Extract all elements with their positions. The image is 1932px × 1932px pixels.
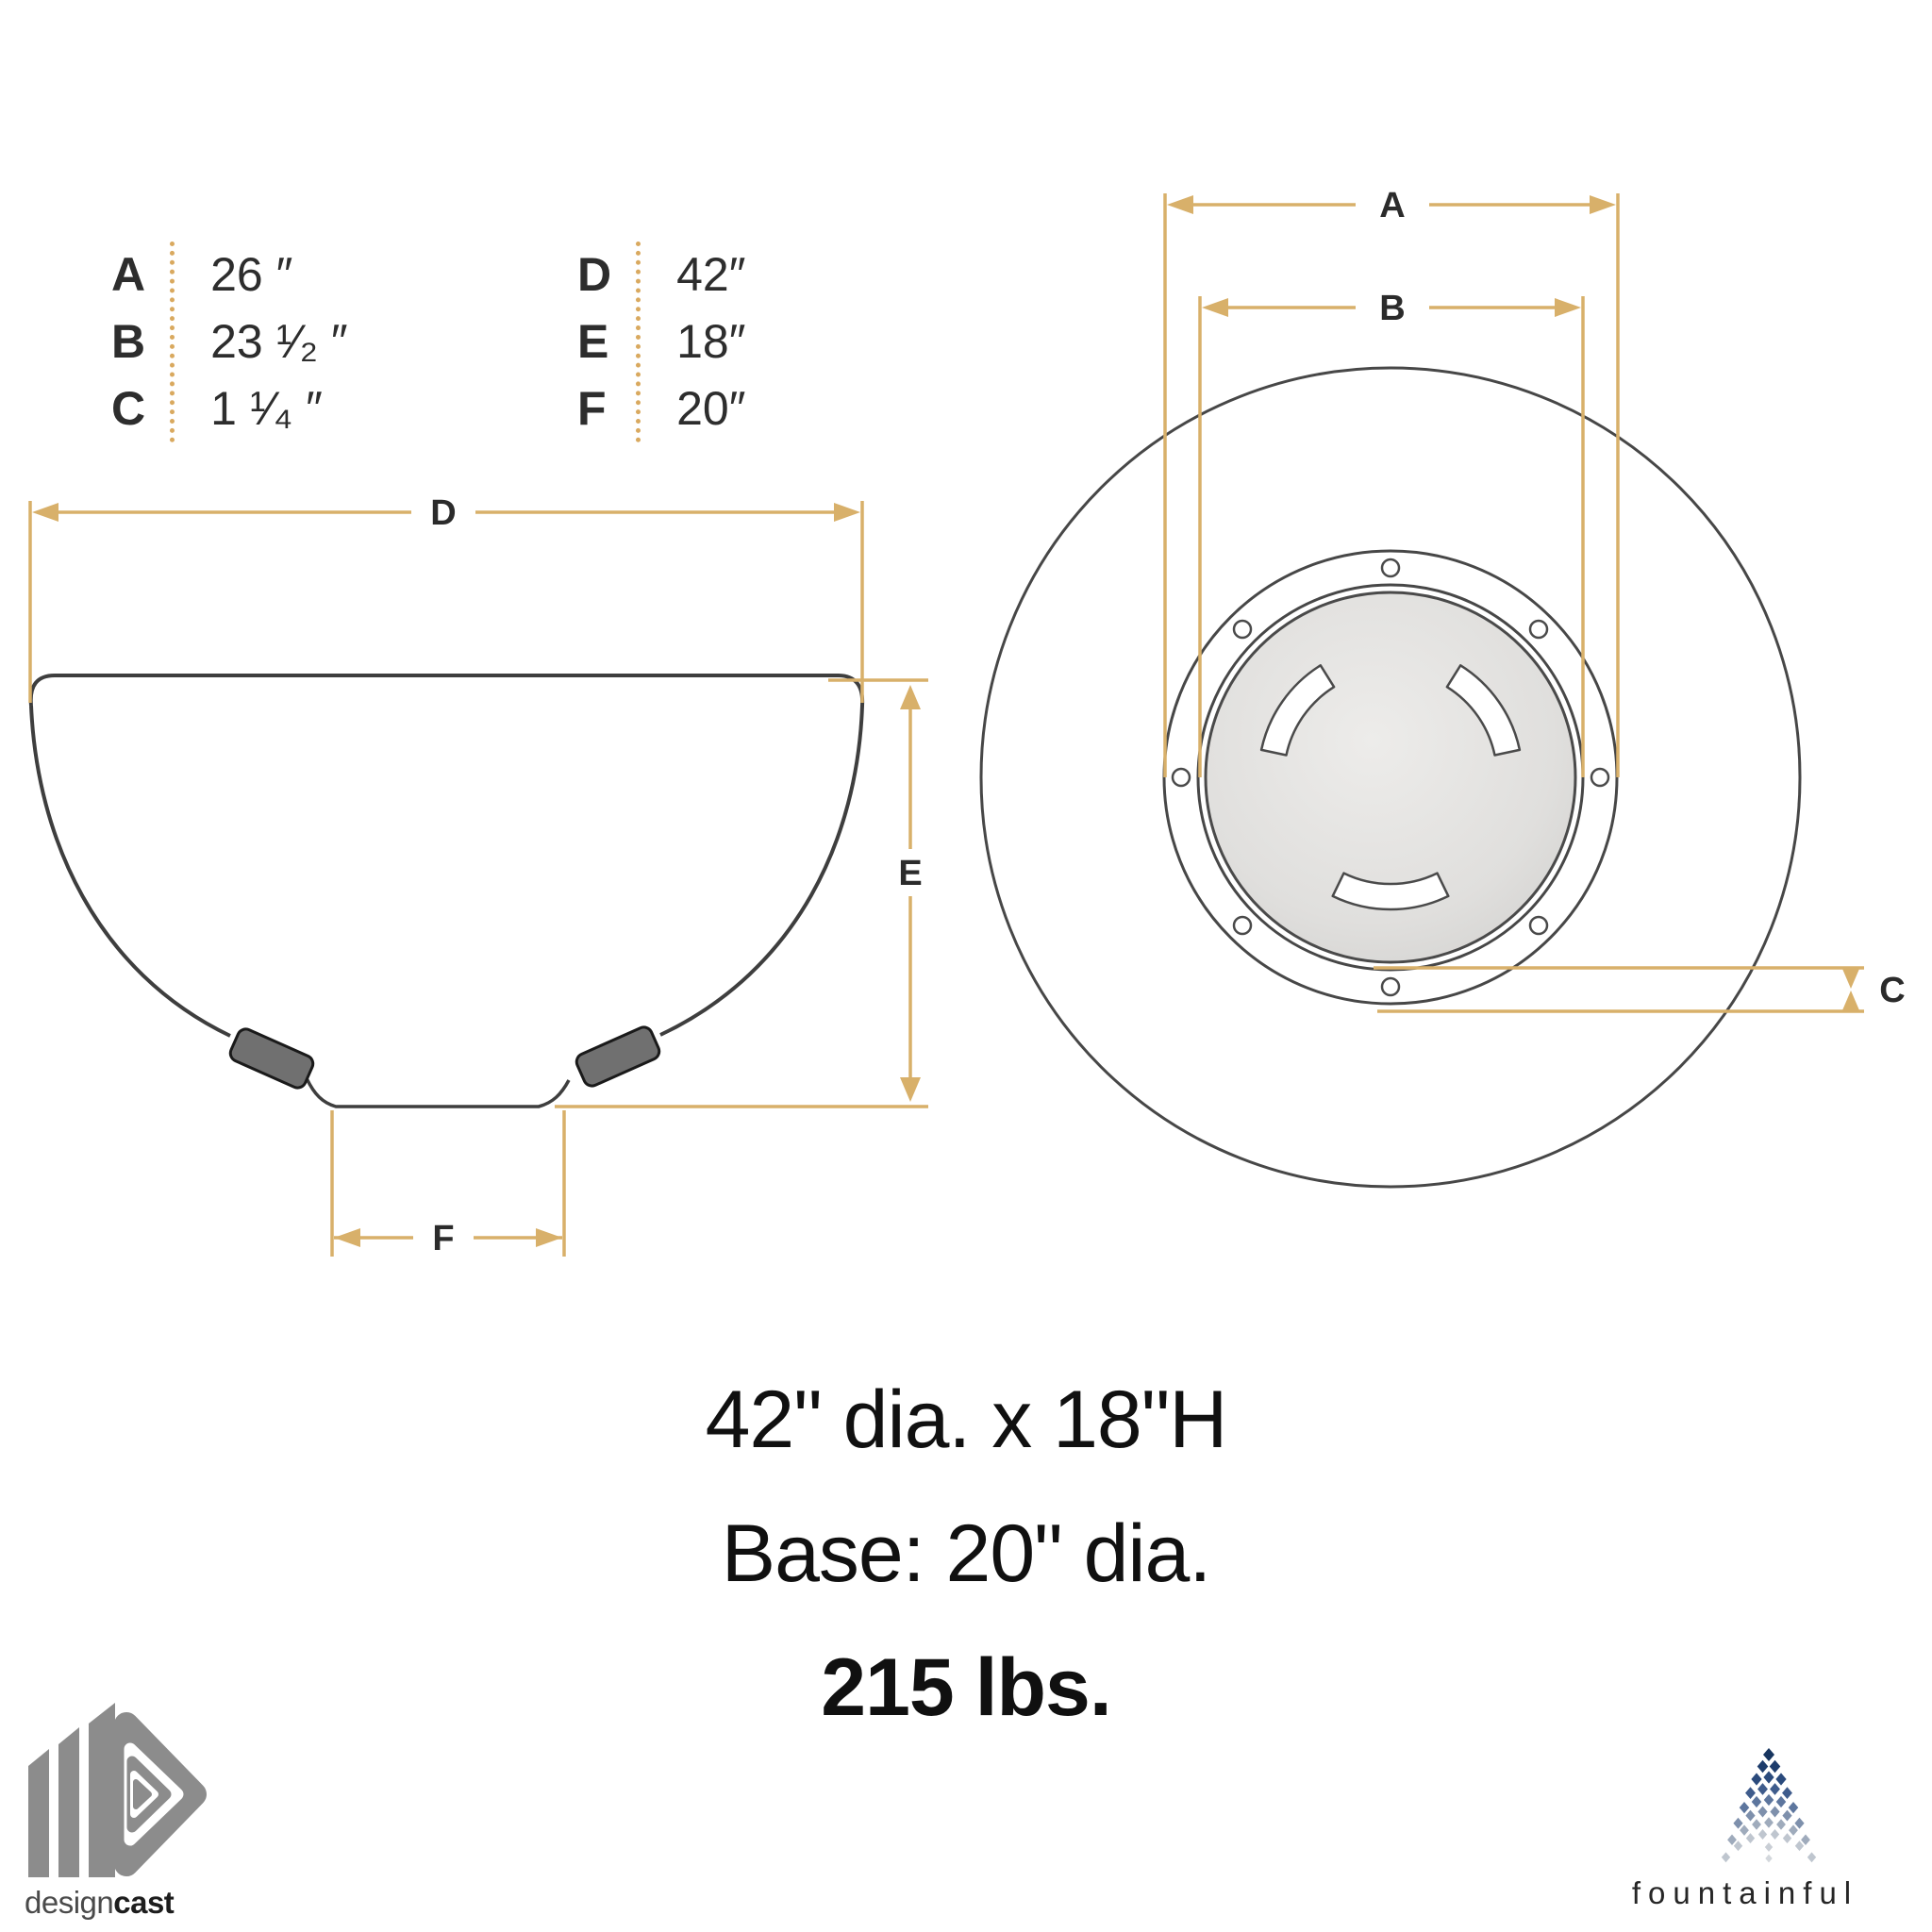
bowl-feet [227,1024,661,1091]
designcast-wordmark: designcast [25,1885,174,1921]
dim-label-c: C [1879,971,1905,1010]
dim-label-d: D [430,493,456,533]
spec-weight: 215 lbs. [0,1621,1932,1755]
spec-base: Base: 20" dia. [0,1487,1932,1621]
side-view-diagram: D E F [30,493,928,1258]
fountainful-logo-icon [1719,1745,1819,1870]
dim-label-b: B [1379,289,1405,328]
dim-label-a: A [1379,186,1405,225]
spec-sheet: A B C 26 ″ 23 ¹⁄₂ ″ 1 ¹⁄₄ ″ D E F 42″ 18… [0,0,1932,1932]
fountainful-wordmark: fountainful [1566,1875,1924,1911]
spec-dimensions: 42" dia. x 18"H [0,1353,1932,1487]
bowl-outline [31,675,862,1107]
designcast-word-bold: cast [113,1885,174,1920]
dimension-c [1374,968,1864,1011]
dim-label-e: E [898,854,922,893]
designcast-word-light: design [25,1885,113,1920]
spec-text-block: 42" dia. x 18"H Base: 20" dia. 215 lbs. [0,1353,1932,1755]
top-view-diagram: A B C [981,186,1906,1187]
designcast-logo-icon [26,1690,215,1884]
dim-label-f: F [432,1219,454,1258]
